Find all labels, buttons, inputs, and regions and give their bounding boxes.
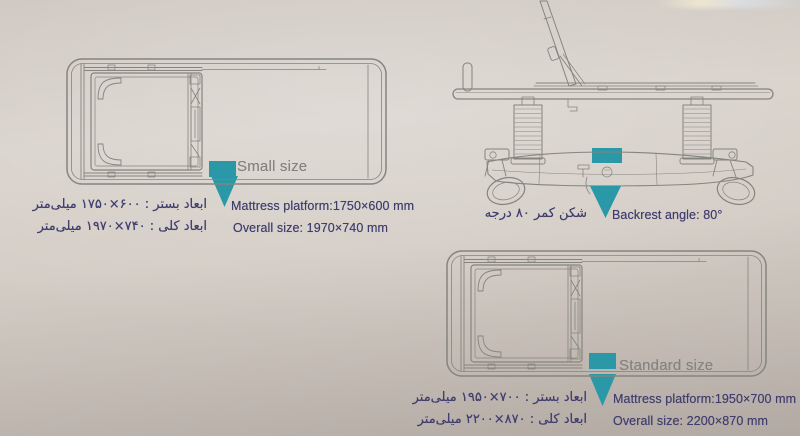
spec-fa-unit: میلی‌متر (418, 412, 462, 427)
small-overall-spec-en: Overall size: 1970×740 mm (233, 221, 388, 236)
standard-overall-spec-fa: ابعاد کلی : ۲۲۰۰×۸۷۰ میلی‌متر (418, 412, 587, 428)
spec-fa-value: ۲۲۰۰×۸۷۰ (466, 412, 526, 427)
spec-fa-value: ۱۹۵۰×۷۰۰ (461, 390, 521, 405)
spec-fa-label: ابعاد کلی : (150, 219, 207, 234)
backrest-spec-fa: شکن کمر ۸۰ درجه (485, 206, 587, 222)
backrest-assembly (540, 1, 585, 86)
spec-fa-unit: درجه (485, 206, 512, 221)
backrest-spec-en: Backrest angle: 80° (612, 208, 722, 223)
spec-fa-label: ابعاد بستر : (525, 390, 587, 405)
spec-fa-value: ۱۷۵۰×۶۰۰ (81, 197, 141, 212)
small-mattress-spec-fa: ابعاد بستر : ۱۷۵۰×۶۰۰ میلی‌متر (33, 197, 207, 213)
standard-mattress-spec-en: Mattress platform:1950×700 mm (613, 392, 796, 407)
spec-fa-label: ابعاد کلی : (530, 412, 587, 427)
small-overall-spec-fa: ابعاد کلی : ۱۹۷۰×۷۴۰ میلی‌متر (38, 219, 207, 235)
catalog-page: Small size ابعاد بستر : ۱۷۵۰×۶۰۰ میلی‌مت… (0, 0, 800, 436)
standard-overall-spec-en: Overall size: 2200×870 mm (613, 414, 768, 429)
stretcher-side-view-drawing (440, 0, 800, 220)
caster-wheel-right (713, 149, 758, 208)
spec-fa-unit: میلی‌متر (33, 197, 77, 212)
spec-fa-value: ۱۹۷۰×۷۴۰ (86, 219, 146, 234)
bed-top-view-standard-drawing (444, 246, 772, 382)
spec-fa-unit: میلی‌متر (413, 390, 457, 405)
small-mattress-spec-en: Mattress platform:1750×600 mm (231, 199, 414, 214)
standard-mattress-spec-fa: ابعاد بستر : ۱۹۵۰×۷۰۰ میلی‌متر (413, 390, 587, 406)
spec-fa-unit: میلی‌متر (38, 219, 82, 234)
bed-top-view-small-drawing (64, 54, 392, 190)
backrest-pointer-head (592, 148, 622, 163)
spec-fa-value: ۸۰ (516, 206, 530, 221)
spec-fa-label: شکن کمر (534, 206, 587, 221)
spec-fa-label: ابعاد بستر : (145, 197, 207, 212)
platform-assembly (453, 63, 773, 111)
